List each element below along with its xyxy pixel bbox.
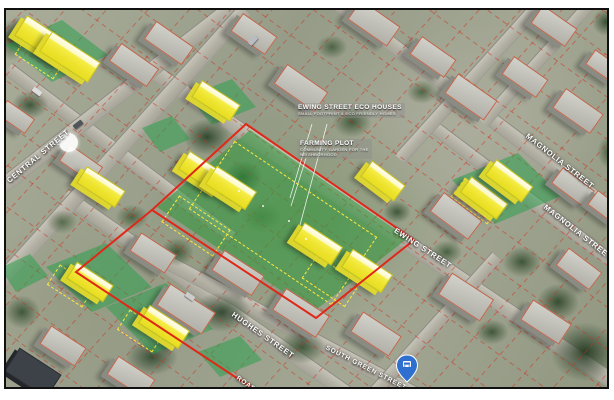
callout-subtitle: SMALL FOOTPRINT & ECO FRIENDLY HOMES [298, 111, 402, 116]
callout-farming-plot: FARMING PLOT COMMUNITY GARDEN FOR THE NE… [297, 139, 372, 159]
callout-eco-houses: EWING STREET ECO HOUSES SMALL FOOTPRINT … [295, 103, 405, 118]
callout-subtitle: NEIGHBORHOOD [300, 152, 369, 157]
map-frame[interactable]: CENTRAL STREET MAGNOLIA STREET MAGNOLIA … [4, 8, 609, 389]
plot-dot [305, 238, 307, 240]
plot-dot [262, 205, 264, 207]
site-plan-page: CENTRAL STREET MAGNOLIA STREET MAGNOLIA … [0, 0, 614, 400]
callout-title: FARMING PLOT [300, 140, 369, 147]
aerial-map: CENTRAL STREET MAGNOLIA STREET MAGNOLIA … [4, 8, 609, 389]
plot-dot [288, 220, 290, 222]
plot-dot [238, 190, 240, 192]
callout-title: EWING STREET ECO HOUSES [298, 104, 402, 111]
